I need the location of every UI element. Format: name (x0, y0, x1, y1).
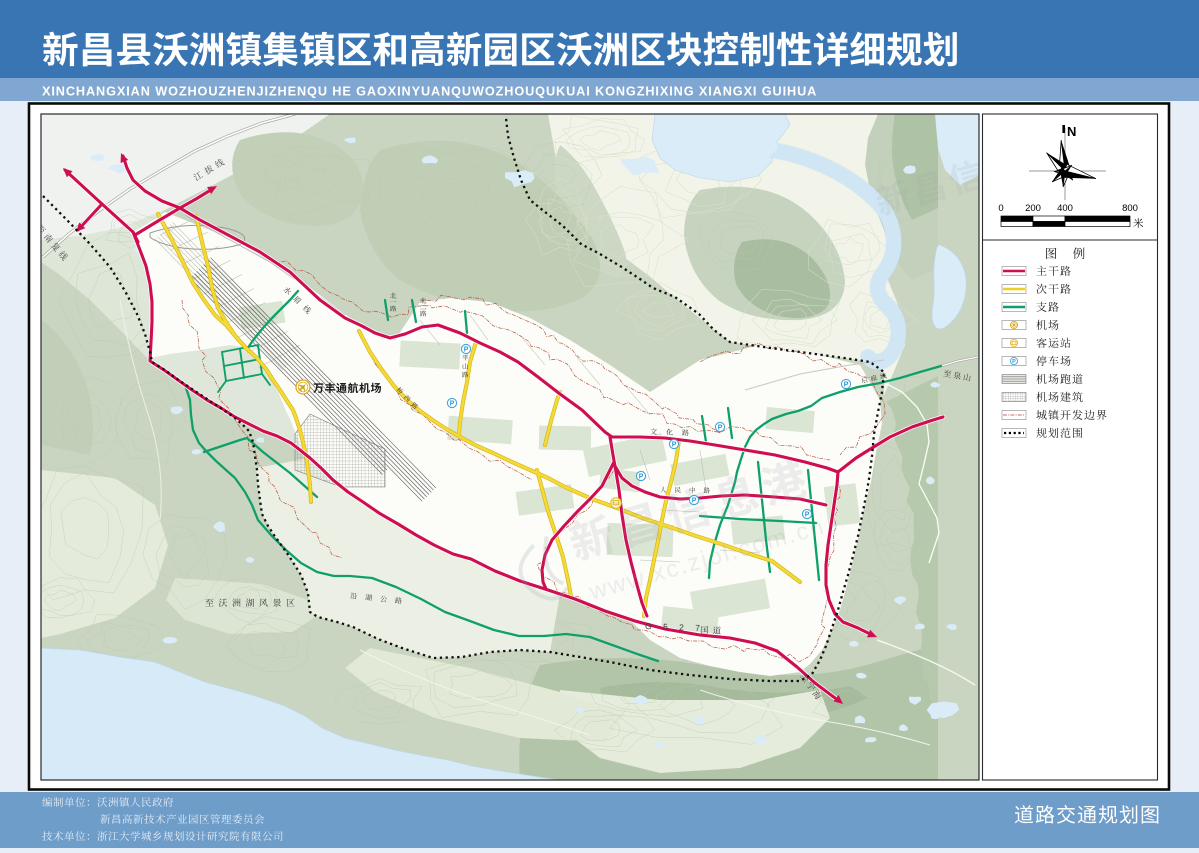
svg-text:P: P (805, 511, 810, 518)
svg-text:P: P (692, 497, 697, 504)
svg-text:N: N (1067, 124, 1076, 139)
svg-text:400: 400 (1057, 203, 1073, 214)
svg-text:P: P (464, 346, 469, 353)
svg-text:P: P (672, 441, 677, 448)
svg-text:200: 200 (1025, 203, 1041, 214)
svg-text:800: 800 (1122, 203, 1138, 214)
svg-text:P: P (450, 400, 455, 407)
svg-text:P: P (718, 424, 723, 431)
svg-text:P: P (1012, 359, 1016, 365)
svg-text:0: 0 (998, 203, 1003, 214)
svg-text:XINCHANGXIAN WOZHOUZHENJIZHENQ: XINCHANGXIAN WOZHOUZHENJIZHENQU HE GAOXI… (42, 85, 817, 99)
svg-text:P: P (844, 381, 849, 388)
svg-text:P: P (639, 473, 644, 480)
svg-text:G 5 2 7: G 5 2 7 (645, 621, 705, 633)
